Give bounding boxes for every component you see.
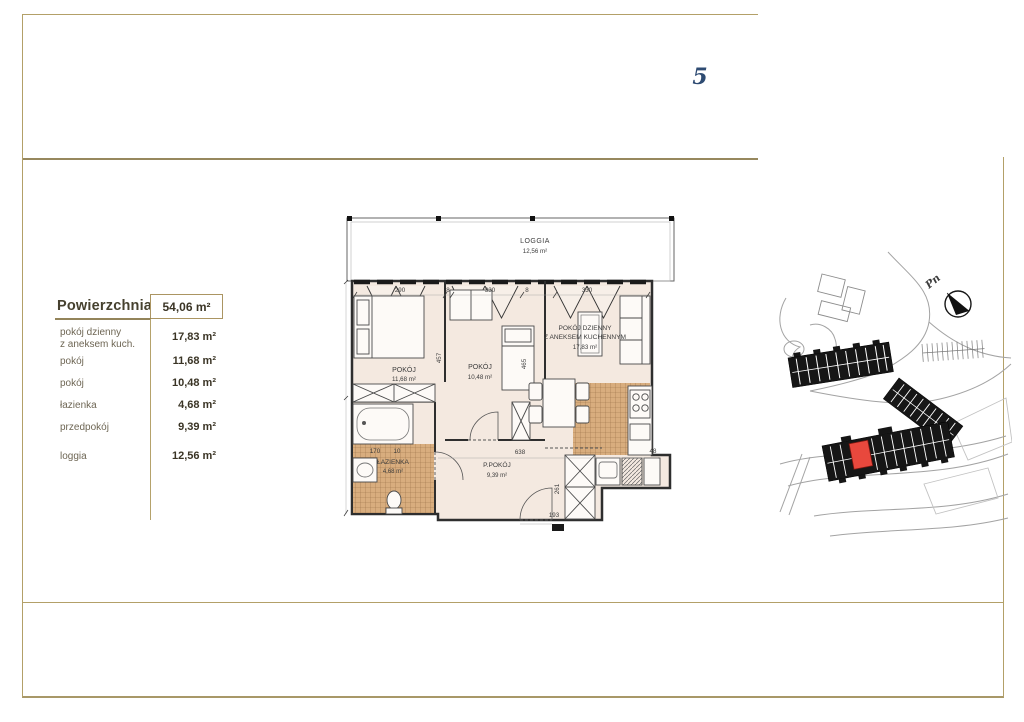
dim-top5: 330 — [582, 287, 593, 294]
area-table-divider — [55, 318, 151, 320]
site-plan: Pn — [772, 248, 1012, 563]
table-row-value: 17,83 m² — [148, 331, 216, 343]
row-label-line1: pokój dzienny — [60, 327, 121, 338]
living-area: 17,83 m² — [573, 344, 597, 351]
living-label-1: POKÓJ DZIENNY — [558, 323, 612, 332]
room-left-label: POKÓJ — [392, 365, 416, 374]
table-row-label: pokój dzienny z aneksem kuch. — [60, 327, 148, 351]
kitchen-counter — [628, 386, 652, 455]
dim-465: 465 — [521, 358, 528, 369]
table-row-value: 11,68 m² — [148, 355, 216, 367]
north-label: Pn — [923, 272, 943, 292]
wardrobe — [450, 290, 492, 320]
dim-top4: 8 — [525, 287, 529, 294]
room-mid-area: 10,48 m² — [468, 374, 492, 381]
area-table-title: Powierzchnia — [57, 298, 151, 318]
bathtub — [353, 404, 413, 444]
apartment: POKÓJ 11,68 m² POKÓJ 10,48 m² POKÓJ DZIE… — [344, 280, 670, 531]
unit-number: 5 — [688, 64, 712, 94]
table-row-value: 10,48 m² — [148, 377, 216, 389]
room-left-area: 11,68 m² — [392, 376, 416, 383]
wardrobe-row — [353, 384, 435, 402]
shaft — [644, 458, 660, 485]
table-row-label: przedpokój — [60, 422, 148, 434]
row-label-line2: z aneksem kuch. — [60, 339, 135, 350]
dim-top1: 290 — [395, 287, 406, 294]
dim-top2: 8 — [446, 287, 450, 294]
area-table-total: 54,06 m² — [150, 294, 223, 319]
single-bed — [502, 326, 534, 390]
footer-box — [22, 602, 1004, 698]
toilet — [386, 491, 402, 514]
dim-457: 457 — [436, 352, 443, 363]
dim-10: 10 — [394, 448, 401, 455]
building-c — [821, 416, 955, 486]
area-table-column-divider — [150, 319, 151, 520]
header-box — [22, 14, 758, 160]
washbasin — [353, 458, 377, 482]
kitchen-sink — [596, 458, 620, 485]
table-row-value: 12,56 m² — [148, 450, 216, 462]
table-row-value: 9,39 m² — [148, 421, 216, 433]
dim-638: 638 — [515, 449, 526, 456]
loggia: LOGGIA 12,56 m² — [347, 216, 674, 281]
hall-wardrobe — [565, 455, 595, 519]
closet-x — [512, 402, 530, 440]
dim-top3: 330 — [485, 287, 496, 294]
dim-193: 193 — [549, 512, 560, 519]
table-row-label: pokój — [60, 356, 148, 368]
bathroom-label: ŁAZIENKA — [377, 459, 409, 466]
floor-plan: LOGGIA 12,56 m² — [340, 212, 685, 542]
table-row-label: łazienka — [60, 400, 148, 412]
double-bed — [354, 296, 424, 358]
fridge — [622, 458, 642, 485]
hall-label: P.POKÓJ — [483, 460, 511, 469]
sofa — [620, 296, 650, 364]
hall-area: 9,39 m² — [487, 473, 507, 479]
brochure-page: 5 Powierzchnia 54,06 m² pokój dzienny z … — [0, 0, 1024, 722]
entry-step — [552, 524, 564, 531]
dim-261: 261 — [554, 483, 561, 494]
dim-170: 170 — [370, 448, 381, 455]
bathroom-area: 4,68 m² — [383, 469, 403, 475]
room-mid-label: POKÓJ — [468, 362, 492, 371]
loggia-label: LOGGIA — [520, 238, 550, 245]
loggia-area: 12,56 m² — [523, 248, 547, 255]
table-row-value: 4,68 m² — [148, 399, 216, 411]
living-label-2: Z ANEKSEM KUCHENNYM — [544, 334, 626, 341]
dim-48: 48 — [650, 448, 657, 455]
table-row-label: pokój — [60, 378, 148, 390]
table-row-label: loggia — [60, 451, 148, 463]
